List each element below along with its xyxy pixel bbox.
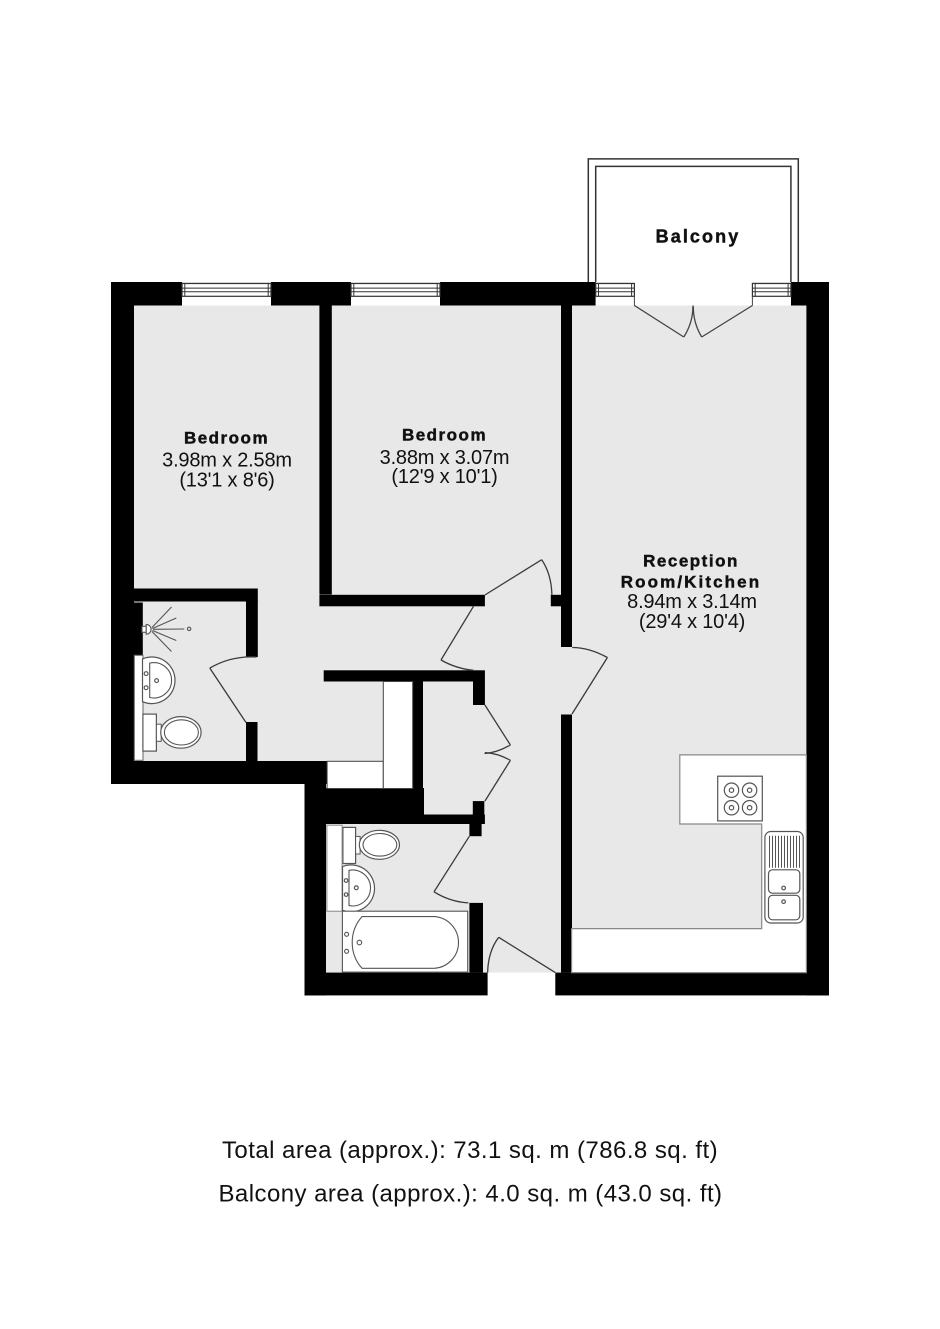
svg-text:(13'1 x 8'6): (13'1 x 8'6) (179, 470, 274, 492)
svg-text:Total area (approx.): 73.1 sq.: Total area (approx.): 73.1 sq. m (786.8 … (222, 1137, 718, 1164)
svg-text:8.94m x 3.14m: 8.94m x 3.14m (627, 591, 757, 613)
svg-text:Balcony area (approx.): 4.0 sq: Balcony area (approx.): 4.0 sq. m (43.0 … (218, 1181, 722, 1208)
svg-text:Bedroom: Bedroom (402, 426, 487, 445)
svg-text:Reception: Reception (643, 552, 739, 571)
svg-text:Room/Kitchen: Room/Kitchen (621, 573, 761, 592)
svg-text:(12'9 x 10'1): (12'9 x 10'1) (391, 466, 497, 488)
svg-text:Bedroom: Bedroom (184, 429, 269, 448)
svg-text:3.98m x 2.58m: 3.98m x 2.58m (162, 450, 292, 472)
svg-text:Balcony: Balcony (656, 226, 741, 246)
svg-text:(29'4 x 10'4): (29'4 x 10'4) (639, 611, 745, 633)
